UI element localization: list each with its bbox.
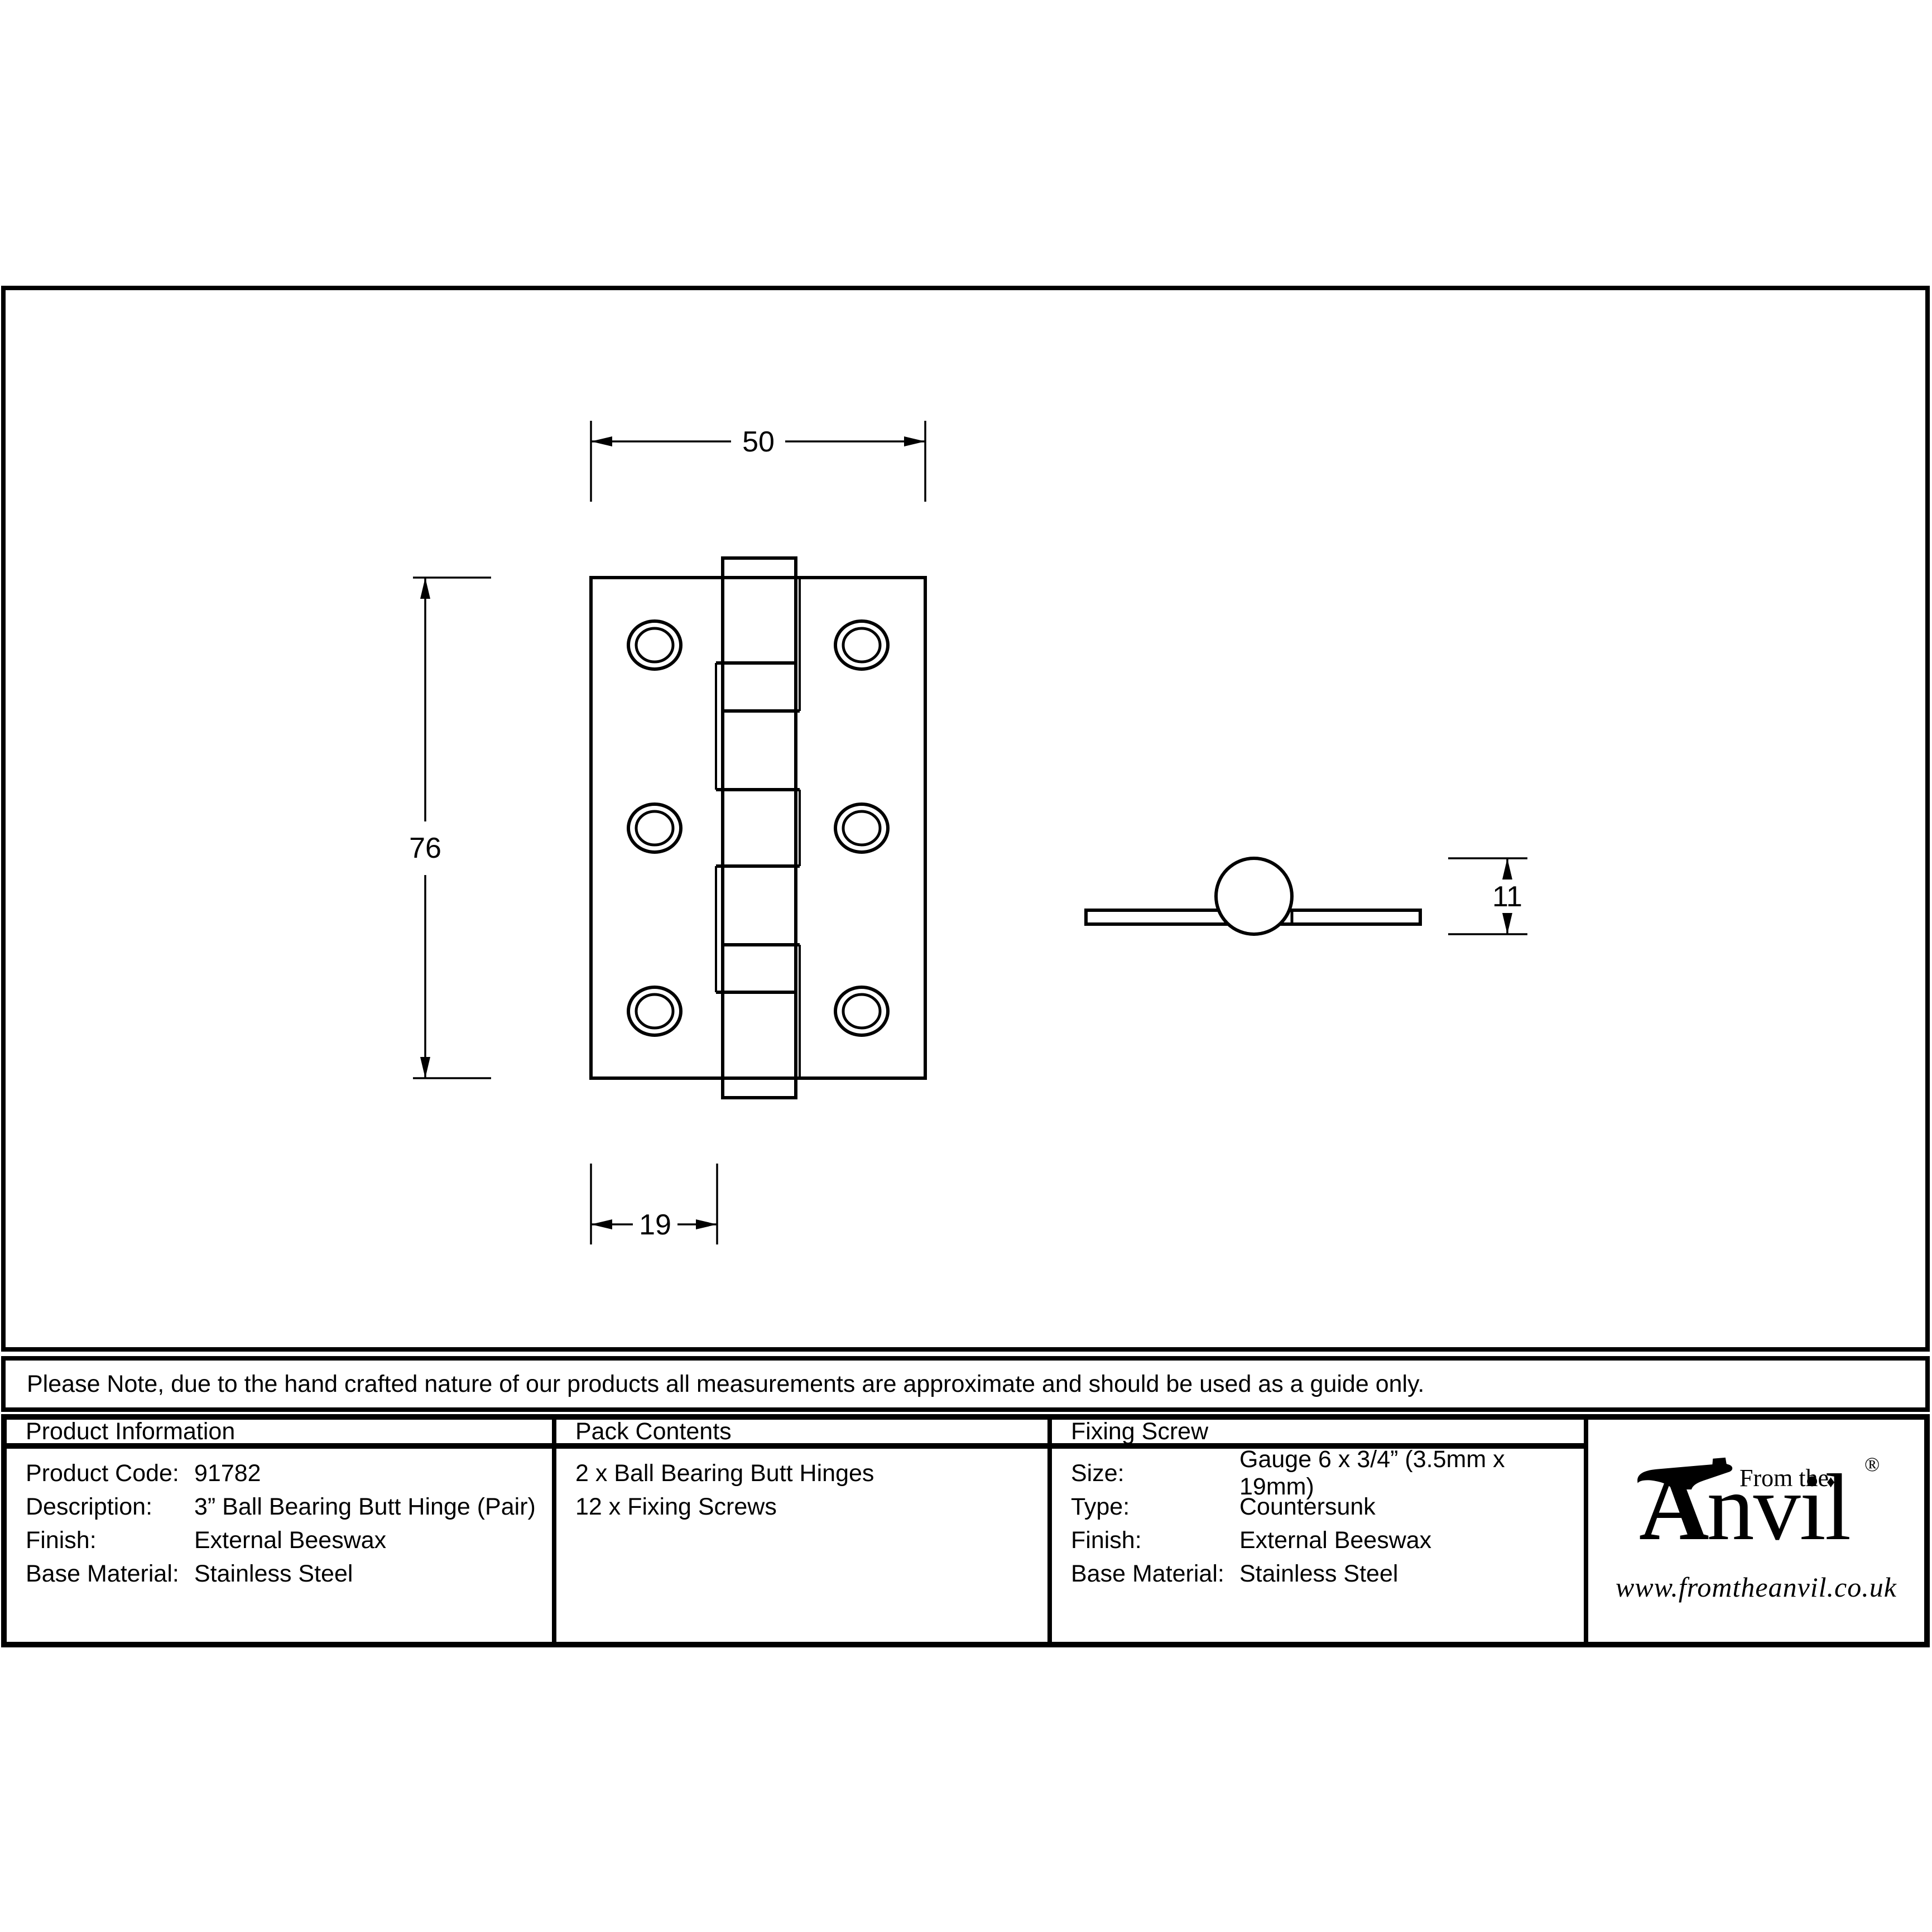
dimension-knuckle-11: 11 bbox=[1448, 858, 1527, 934]
registered-trademark-icon: ® bbox=[1864, 1453, 1880, 1476]
anvil-wordmark: Anvil From the ♦ ® bbox=[1639, 1458, 1873, 1568]
arrowhead-left-icon bbox=[591, 1219, 612, 1229]
pack-item-hinges: 2 x Ball Bearing Butt Hinges bbox=[575, 1457, 1047, 1490]
arrowhead-up-icon bbox=[1502, 858, 1512, 880]
screw-hole bbox=[843, 994, 880, 1028]
header-fixing-screw: Fixing Screw bbox=[1052, 1420, 1588, 1449]
anvil-icon bbox=[1633, 1457, 1734, 1489]
header-product-information-label: Product Information bbox=[26, 1418, 235, 1445]
arrowhead-down-icon bbox=[1502, 913, 1512, 934]
header-pack-contents-label: Pack Contents bbox=[575, 1418, 732, 1445]
from-the-anvil-logo: Anvil From the ♦ ® www.fromtheanvil.co.u… bbox=[1616, 1458, 1897, 1603]
dim-label-width: 50 bbox=[742, 426, 775, 458]
logo-prefix: From the bbox=[1739, 1464, 1829, 1492]
hinge-leaf-plate bbox=[591, 578, 925, 1078]
dimension-height-76: 76 bbox=[409, 578, 491, 1078]
spec-row-base-material: Base Material: Stainless Steel bbox=[26, 1557, 552, 1590]
hinge-front-view bbox=[591, 558, 925, 1098]
diamond-icon: ♦ bbox=[1827, 1473, 1835, 1492]
spec-row-description: Description: 3” Ball Bearing Butt Hinge … bbox=[26, 1490, 552, 1524]
pack-contents-body: 2 x Ball Bearing Butt Hinges 12 x Fixing… bbox=[556, 1449, 1052, 1642]
arrowhead-up-icon bbox=[420, 578, 430, 599]
product-info-table: Product Information Pack Contents Fixing… bbox=[1, 1414, 1930, 1647]
arrowhead-right-icon bbox=[904, 436, 925, 446]
hinge-technical-drawing: 50 76 bbox=[6, 290, 1925, 1347]
knuckle-barrel bbox=[1216, 858, 1292, 934]
arrowhead-down-icon bbox=[420, 1057, 430, 1078]
bearing-washer-edges bbox=[716, 578, 800, 1078]
dim-label-leaf: 19 bbox=[639, 1209, 671, 1241]
screw-hole bbox=[843, 628, 880, 662]
note-text: Please Note, due to the hand crafted nat… bbox=[27, 1371, 1424, 1398]
header-product-information: Product Information bbox=[7, 1420, 556, 1449]
spec-row-finish: Finish: External Beeswax bbox=[26, 1524, 552, 1557]
header-pack-contents: Pack Contents bbox=[556, 1420, 1052, 1449]
fixing-screw-body: Size: Gauge 6 x 3/4” (3.5mm x 19mm) Type… bbox=[1052, 1449, 1588, 1642]
spec-row-product-code: Product Code: 91782 bbox=[26, 1457, 552, 1490]
pack-item-screws: 12 x Fixing Screws bbox=[575, 1490, 1047, 1524]
dimension-leaf-19: 19 bbox=[591, 1164, 717, 1244]
note-banner: Please Note, due to the hand crafted nat… bbox=[1, 1356, 1930, 1412]
spec-row-size: Size: Gauge 6 x 3/4” (3.5mm x 19mm) bbox=[1071, 1457, 1584, 1490]
screw-hole bbox=[843, 811, 880, 845]
brand-logo-cell: Anvil From the ♦ ® www.fromtheanvil.co.u… bbox=[1588, 1420, 1924, 1642]
product-information-body: Product Code: 91782 Description: 3” Ball… bbox=[7, 1449, 556, 1642]
hinge-side-view: 11 bbox=[1086, 858, 1527, 934]
arrowhead-right-icon bbox=[696, 1219, 717, 1229]
spec-row-screw-base-material: Base Material: Stainless Steel bbox=[1071, 1557, 1584, 1590]
screw-hole bbox=[636, 628, 673, 662]
screw-holes bbox=[628, 621, 888, 1035]
knuckle-divisions bbox=[716, 663, 800, 992]
spec-row-screw-finish: Finish: External Beeswax bbox=[1071, 1524, 1584, 1557]
screw-hole bbox=[636, 994, 673, 1028]
dimension-width-50: 50 bbox=[591, 421, 925, 502]
screw-hole bbox=[636, 811, 673, 845]
arrowhead-left-icon bbox=[591, 436, 612, 446]
dim-label-knuckle: 11 bbox=[1492, 881, 1522, 913]
spec-sheet-page: 50 76 bbox=[0, 0, 1932, 1932]
header-fixing-screw-label: Fixing Screw bbox=[1071, 1418, 1208, 1445]
hinge-pin-column bbox=[723, 558, 796, 1098]
dim-label-height: 76 bbox=[409, 832, 441, 864]
technical-drawing-panel: 50 76 bbox=[1, 286, 1930, 1352]
logo-url: www.fromtheanvil.co.uk bbox=[1616, 1571, 1897, 1603]
